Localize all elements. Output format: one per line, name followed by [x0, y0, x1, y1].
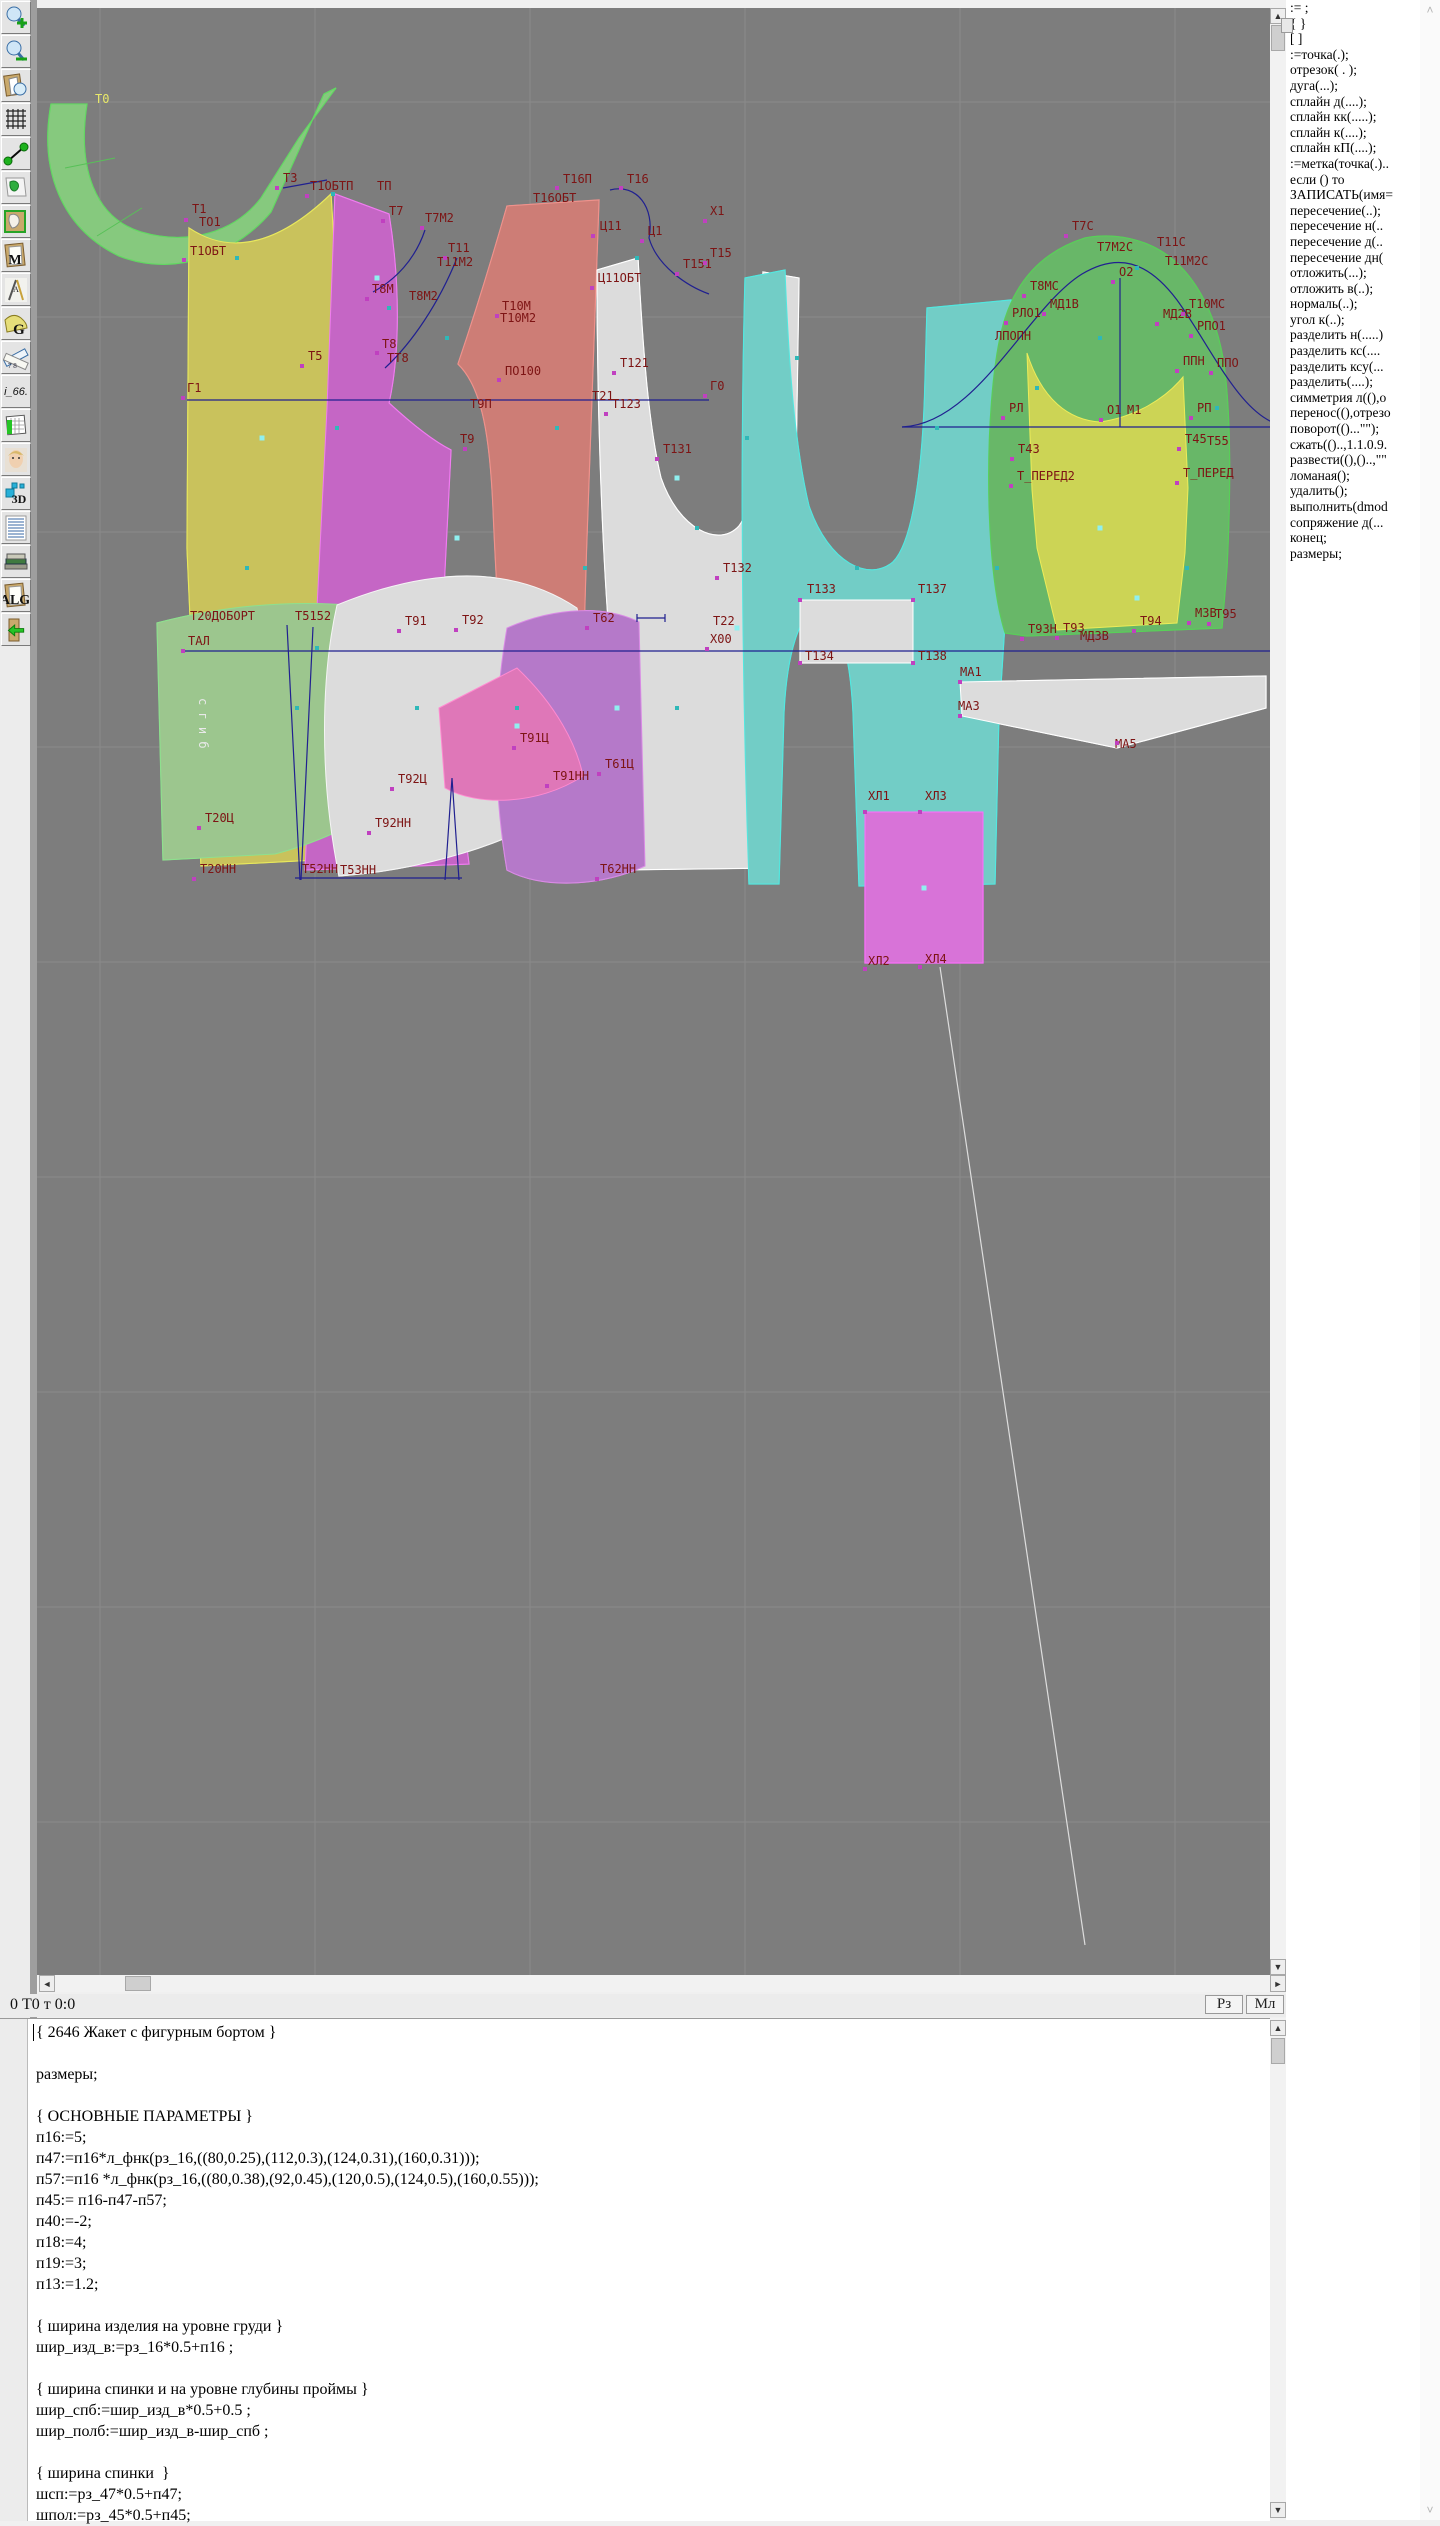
- pattern-point[interactable]: [455, 536, 460, 541]
- point-label-Т22: Т22: [713, 614, 735, 628]
- command-item-8[interactable]: сплайн к(....);: [1286, 125, 1420, 141]
- code-line-6: п47:=п16*л_фнк(рз_16,((80,0.25),(112,0.3…: [36, 2148, 539, 2169]
- pattern-point[interactable]: [1207, 622, 1211, 626]
- scroll-down-icon[interactable]: ▼: [1270, 1959, 1286, 1975]
- pattern-point[interactable]: [305, 194, 309, 198]
- pattern-point[interactable]: [515, 706, 519, 710]
- point-label-Т92НН: Т92НН: [375, 816, 411, 830]
- command-item-6[interactable]: сплайн д(....);: [1286, 94, 1420, 110]
- pattern-point[interactable]: [387, 306, 391, 310]
- pattern-point[interactable]: [1055, 636, 1059, 640]
- scroll-up-icon[interactable]: ˄: [1422, 2, 1438, 18]
- pattern-point[interactable]: [1111, 280, 1115, 284]
- pattern-point[interactable]: [235, 256, 239, 260]
- code-line-3: [36, 2085, 539, 2106]
- code-line-18: шир_спб:=шир_изд_в*0.5+0.5 ;: [36, 2400, 539, 2421]
- cursor-position-status: 0 Т0 т 0:0: [10, 1996, 75, 2014]
- pattern-point[interactable]: [335, 426, 339, 430]
- pattern-point[interactable]: [855, 566, 859, 570]
- canvas-vertical-scrollbar[interactable]: ▲ ▼: [1270, 8, 1286, 1975]
- point-label-Т131: Т131: [663, 442, 692, 456]
- scroll-down-icon[interactable]: ˅: [1422, 2502, 1438, 2518]
- sidebar-scrollbar[interactable]: ˄ ˅: [1420, 0, 1440, 2520]
- editor-text[interactable]: { 2646 Жакет с фигурным бортом } размеры…: [36, 2022, 539, 2526]
- drawing-canvas[interactable]: Т0Т1ТО1Т1ОБТТ3Т1ОБТПТПТ7Т7М2Т11Т11М2Т8МТ…: [37, 8, 1270, 1975]
- point-label-Х00: Х00: [710, 632, 732, 646]
- canvas-hscroll-thumb[interactable]: [125, 1976, 151, 1991]
- pattern-point[interactable]: [390, 787, 394, 791]
- pattern-point[interactable]: [1042, 312, 1046, 316]
- point-label-Т55: Т55: [1207, 434, 1229, 448]
- point-label-Г1: Г1: [187, 381, 201, 395]
- command-item-16[interactable]: пересечение дн(: [1286, 250, 1420, 266]
- pattern-point[interactable]: [635, 256, 639, 260]
- pattern-point[interactable]: [1098, 526, 1103, 531]
- point-label-МА3: МА3: [958, 699, 980, 713]
- point-label-ПО100: ПО100: [505, 364, 541, 378]
- pattern-point[interactable]: [918, 810, 922, 814]
- pattern-point[interactable]: [918, 965, 922, 969]
- pattern-point[interactable]: [375, 351, 379, 355]
- scroll-up-icon[interactable]: ▲: [1270, 2020, 1286, 2036]
- pattern-point[interactable]: [1177, 447, 1181, 451]
- command-item-25[interactable]: симметрия л((),о: [1286, 390, 1420, 406]
- point-label-Т20НН: Т20НН: [200, 862, 236, 876]
- point-label-Т11М2: Т11М2: [437, 255, 473, 269]
- pattern-point[interactable]: [604, 412, 608, 416]
- command-item-26[interactable]: перенос((),отрезо: [1286, 405, 1420, 421]
- code-line-14: { ширина изделия на уровне груди }: [36, 2316, 539, 2337]
- command-item-9[interactable]: сплайн кП(....);: [1286, 140, 1420, 156]
- command-item-0[interactable]: := ;: [1286, 0, 1420, 16]
- text-cursor: [33, 2024, 34, 2041]
- pattern-point[interactable]: [300, 364, 304, 368]
- point-label-Г0: Г0: [710, 379, 724, 393]
- code-line-9: п40:=-2;: [36, 2211, 539, 2232]
- point-label-МД2В: МД2В: [1163, 307, 1192, 321]
- status-bar: 0 Т0 т 0:0 Рз Мл: [0, 1994, 1286, 2017]
- point-label-Т92Ц: Т92Ц: [398, 772, 427, 786]
- pattern-point[interactable]: [245, 566, 249, 570]
- svg-text:ALG: ALG: [3, 593, 29, 608]
- point-label-Т16: Т16: [627, 172, 649, 186]
- algorithm-icon[interactable]: ALG: [1, 579, 31, 612]
- point-label-Т9П: Т9П: [470, 397, 492, 411]
- point-label-Т_ПЕРЕД: Т_ПЕРЕД: [1183, 466, 1234, 480]
- pattern-point[interactable]: [995, 566, 999, 570]
- point-label-РЛ: РЛ: [1009, 401, 1023, 415]
- point-label-ХЛ4: ХЛ4: [925, 952, 947, 966]
- pattern-point[interactable]: [703, 261, 707, 265]
- pattern-point[interactable]: [705, 647, 709, 651]
- preview-piece-icon[interactable]: [1, 69, 31, 102]
- point-label-Т7: Т7: [389, 204, 403, 218]
- pattern-point[interactable]: [454, 628, 458, 632]
- point-label-ТО1: ТО1: [199, 215, 221, 229]
- point-label-Т133: Т133: [807, 582, 836, 596]
- point-label-Т11М2С: Т11М2С: [1165, 254, 1208, 268]
- point-label-Ц11ОБТ: Ц11ОБТ: [598, 271, 641, 285]
- pattern-point[interactable]: [367, 831, 371, 835]
- point-label-Т93Н: Т93Н: [1028, 622, 1057, 636]
- pattern-point[interactable]: [1187, 621, 1191, 625]
- point-label-Т134: Т134: [805, 649, 834, 663]
- point-label-Т53НН: Т53НН: [340, 863, 376, 877]
- point-label-Т7С: Т7С: [1072, 219, 1094, 233]
- 3d-view-icon[interactable]: 3D: [1, 477, 31, 510]
- code-line-21: { ширина спинки }: [36, 2463, 539, 2484]
- point-label-Т11: Т11: [448, 241, 470, 255]
- pattern-point[interactable]: [640, 239, 644, 243]
- editor-gutter: [0, 2019, 28, 2521]
- pattern-point[interactable]: [1175, 481, 1179, 485]
- command-item-23[interactable]: разделить ксу(...: [1286, 359, 1420, 375]
- point-label-Т_ПЕРЕД2: Т_ПЕРЕД2: [1017, 469, 1075, 483]
- pattern-point[interactable]: [1189, 416, 1193, 420]
- point-label-Т1ОБТ: Т1ОБТ: [190, 244, 226, 258]
- pattern-point[interactable]: [497, 378, 501, 382]
- point-label-Т52НН: Т52НН: [302, 862, 338, 876]
- pattern-point[interactable]: [1004, 321, 1008, 325]
- pattern-point[interactable]: [260, 436, 265, 441]
- command-item-33[interactable]: сопряжение д(...: [1286, 515, 1420, 531]
- command-item-21[interactable]: разделить н(.....): [1286, 327, 1420, 343]
- point-label-О1: О1: [1107, 403, 1121, 417]
- command-item-30[interactable]: ломаная();: [1286, 468, 1420, 484]
- point-label-Т91: Т91: [405, 614, 427, 628]
- point-label-Т10МС: Т10МС: [1189, 297, 1225, 311]
- pattern-point[interactable]: [1155, 322, 1159, 326]
- pattern-point[interactable]: [275, 186, 279, 190]
- code-line-7: п57:=п16 *л_фнк(рз_16,((80,0.38),(92,0.4…: [36, 2169, 539, 2190]
- import-book-icon[interactable]: [1, 613, 31, 646]
- size-table-icon[interactable]: [1, 409, 31, 442]
- fold-label: с г и б: [196, 698, 210, 749]
- point-label-Т10М2: Т10М2: [500, 311, 536, 325]
- code-line-16: [36, 2358, 539, 2379]
- command-item-7[interactable]: сплайн кк(.....);: [1286, 109, 1420, 125]
- pattern-point[interactable]: [515, 724, 520, 729]
- point-label-М3В: М3В: [1195, 606, 1217, 620]
- command-item-28[interactable]: сжать(()..,1.1.0.9.: [1286, 437, 1420, 453]
- editor-vertical-scrollbar[interactable]: ▲ ▼: [1270, 2018, 1286, 2520]
- drafting-tools-icon[interactable]: A: [1, 273, 31, 306]
- pattern-point[interactable]: [615, 706, 620, 711]
- pattern-point[interactable]: [675, 706, 679, 710]
- svg-text:3D: 3D: [12, 492, 27, 506]
- point-label-Т151: Т151: [683, 257, 712, 271]
- point-label-Ц1: Ц1: [648, 224, 662, 238]
- pattern-point[interactable]: [181, 649, 185, 653]
- point-label-ХЛ2: ХЛ2: [868, 954, 890, 968]
- pattern-icon[interactable]: [1, 205, 31, 238]
- point-label-Т8М2: Т8М2: [409, 289, 438, 303]
- script-list-icon[interactable]: [1, 511, 31, 544]
- point-label-Т91НН: Т91НН: [553, 769, 589, 783]
- command-item-19[interactable]: нормаль(..);: [1286, 296, 1420, 312]
- pattern-point[interactable]: [1115, 741, 1119, 745]
- point-label-РП: РП: [1197, 401, 1211, 415]
- point-label-Т62: Т62: [593, 611, 615, 625]
- pattern-point[interactable]: [375, 276, 380, 281]
- command-item-34[interactable]: конец;: [1286, 530, 1420, 546]
- pattern-point[interactable]: [798, 661, 802, 665]
- command-item-27[interactable]: поворот(()..."");: [1286, 421, 1420, 437]
- command-item-4[interactable]: отрезок( . );: [1286, 62, 1420, 78]
- pattern-point[interactable]: [715, 576, 719, 580]
- command-item-29[interactable]: развести((),()..,"": [1286, 452, 1420, 468]
- pattern-point[interactable]: [798, 598, 802, 602]
- portrait-icon[interactable]: [1, 443, 31, 476]
- pattern-point[interactable]: [675, 272, 679, 276]
- pattern-point[interactable]: [1010, 457, 1014, 461]
- rz-button[interactable]: Рз: [1205, 1995, 1243, 2014]
- canvas-horizontal-scrollbar[interactable]: ◄ ►: [37, 1975, 1286, 1992]
- pattern-point[interactable]: [1022, 294, 1026, 298]
- point-label-Т0: Т0: [95, 92, 109, 106]
- point-label-Т5152: Т5152: [295, 609, 331, 623]
- code-line-5: п16:=5;: [36, 2127, 539, 2148]
- pattern-point[interactable]: [911, 598, 915, 602]
- pattern-point[interactable]: [922, 886, 927, 891]
- point-label-Т9: Т9: [460, 432, 474, 446]
- grid-icon[interactable]: [1, 103, 31, 136]
- pattern-point[interactable]: [381, 219, 385, 223]
- command-item-14[interactable]: пересечение н(..: [1286, 218, 1420, 234]
- command-item-24[interactable]: разделить(....);: [1286, 374, 1420, 390]
- command-item-15[interactable]: пересечение д(..: [1286, 234, 1420, 250]
- pattern-point[interactable]: [1185, 566, 1189, 570]
- pattern-point[interactable]: [1098, 336, 1102, 340]
- code-line-1: [36, 2043, 539, 2064]
- point-label-Т45: Т45: [1185, 432, 1207, 446]
- pattern-point[interactable]: [192, 877, 196, 881]
- point-label-ППО: ППО: [1217, 356, 1239, 370]
- point-label-Т8МС: Т8МС: [1030, 279, 1059, 293]
- point-label-Т61Ц: Т61Ц: [605, 757, 634, 771]
- command-item-32[interactable]: выполнить(dmod: [1286, 499, 1420, 515]
- code-line-13: [36, 2295, 539, 2316]
- pattern-point[interactable]: [512, 746, 516, 750]
- pattern-point[interactable]: [545, 784, 549, 788]
- zoom-in-icon[interactable]: [1, 1, 31, 34]
- point-label-Т137: Т137: [918, 582, 947, 596]
- pattern-point[interactable]: [597, 772, 601, 776]
- pattern-point[interactable]: [1035, 386, 1039, 390]
- point-label-Т7М2: Т7М2: [425, 211, 454, 225]
- point-label-Т5: Т5: [308, 349, 322, 363]
- code-line-23: шпол:=рз_45*0.5+п45;: [36, 2505, 539, 2526]
- command-list: := ;{ }[ ]:=точка(.);отрезок( . );дуга(.…: [1286, 0, 1420, 2520]
- pattern-point[interactable]: [1209, 371, 1213, 375]
- pattern-point[interactable]: [197, 826, 201, 830]
- point-label-Т95: Т95: [1215, 607, 1237, 621]
- code-line-8: п45:= п16-п47-п57;: [36, 2190, 539, 2211]
- command-item-5[interactable]: дуга(...);: [1286, 78, 1420, 94]
- command-item-31[interactable]: удалить();: [1286, 483, 1420, 499]
- pattern-point[interactable]: [1189, 334, 1193, 338]
- command-item-2[interactable]: [ ]: [1286, 31, 1420, 47]
- command-item-20[interactable]: угол к(..);: [1286, 312, 1420, 328]
- pattern-point[interactable]: [703, 394, 707, 398]
- segment-icon[interactable]: [1, 137, 31, 170]
- scroll-down-icon[interactable]: ▼: [1270, 2502, 1286, 2518]
- pattern-point[interactable]: [443, 256, 447, 260]
- pattern-point[interactable]: [1181, 312, 1185, 316]
- point-label-Т91Ц: Т91Ц: [520, 731, 549, 745]
- pattern-point[interactable]: [1009, 484, 1013, 488]
- point-label-ППН: ППН: [1183, 354, 1205, 368]
- pattern-point[interactable]: [863, 967, 867, 971]
- svg-text:7 8: 7 8: [8, 362, 17, 370]
- pattern-point[interactable]: [655, 457, 659, 461]
- point-label-Т16ОБТ: Т16ОБТ: [533, 191, 576, 205]
- pattern-point[interactable]: [1001, 416, 1005, 420]
- pattern-point[interactable]: [1064, 234, 1068, 238]
- pattern-point[interactable]: [181, 396, 185, 400]
- command-item-13[interactable]: пересечение(..);: [1286, 203, 1420, 219]
- pattern-point[interactable]: [583, 566, 587, 570]
- code-line-20: [36, 2442, 539, 2463]
- pattern-point[interactable]: [1132, 629, 1136, 633]
- pattern-point[interactable]: [315, 646, 319, 650]
- pattern-point[interactable]: [958, 680, 962, 684]
- i66-button[interactable]: i_66.: [1, 375, 31, 408]
- point-label-Т20ДОБОРТ: Т20ДОБОРТ: [190, 609, 255, 623]
- pattern-point[interactable]: [1215, 406, 1219, 410]
- point-label-Т16П: Т16П: [563, 172, 592, 186]
- code-line-12: п13:=1.2;: [36, 2274, 539, 2295]
- point-label-ХЛ3: ХЛ3: [925, 789, 947, 803]
- point-label-Ц11: Ц11: [600, 219, 622, 233]
- point-label-Т1: Т1: [192, 202, 206, 216]
- pattern-point[interactable]: [1135, 596, 1140, 601]
- pattern-point[interactable]: [675, 476, 680, 481]
- scroll-right-icon[interactable]: ►: [1270, 1975, 1286, 1992]
- pattern-point[interactable]: [795, 356, 799, 360]
- pattern-point[interactable]: [1099, 418, 1103, 422]
- point-label-Т132: Т132: [723, 561, 752, 575]
- point-label-Т20Ц: Т20Ц: [205, 811, 234, 825]
- command-item-22[interactable]: разделить кс(....: [1286, 343, 1420, 359]
- pattern-point[interactable]: [911, 661, 915, 665]
- point-label-М1: М1: [1127, 403, 1141, 417]
- code-line-10: п18:=4;: [36, 2232, 539, 2253]
- point-label-ТАЛ: ТАЛ: [188, 634, 210, 648]
- pattern-point[interactable]: [182, 258, 186, 262]
- pattern-point[interactable]: [331, 192, 335, 196]
- point-label-ТТ8: ТТ8: [387, 351, 409, 365]
- rulers-icon[interactable]: 7 8: [1, 341, 31, 374]
- pattern-point[interactable]: [703, 219, 707, 223]
- code-line-0: { 2646 Жакет с фигурным бортом }: [36, 2022, 539, 2043]
- command-item-10[interactable]: :=метка(точка(.)..: [1286, 156, 1420, 172]
- point-label-ТП: ТП: [377, 179, 391, 193]
- pattern-point[interactable]: [463, 447, 467, 451]
- pattern-point[interactable]: [585, 626, 589, 630]
- command-item-35[interactable]: размеры;: [1286, 546, 1420, 562]
- model-document-icon[interactable]: M: [1, 239, 31, 272]
- point-label-Т11С: Т11С: [1157, 235, 1186, 249]
- point-label-Т7М2С: Т7М2С: [1097, 240, 1133, 254]
- point-label-Т92: Т92: [462, 613, 484, 627]
- scroll-left-icon[interactable]: ◄: [39, 1975, 55, 1992]
- map-icon[interactable]: [1, 171, 31, 204]
- point-label-РЛО1: РЛО1: [1012, 306, 1041, 320]
- g-pattern-icon[interactable]: G: [1, 307, 31, 340]
- point-label-Т62НН: Т62НН: [600, 862, 636, 876]
- pattern-point[interactable]: [555, 186, 559, 190]
- editor-vscroll-thumb[interactable]: [1271, 2038, 1285, 2064]
- sidebar-handle: [1281, 18, 1293, 33]
- code-line-4: { ОСНОВНЫЕ ПАРАМЕТРЫ }: [36, 2106, 539, 2127]
- pattern-point[interactable]: [745, 436, 749, 440]
- ml-button[interactable]: Мл: [1246, 1995, 1284, 2014]
- command-item-17[interactable]: отложить(...);: [1286, 265, 1420, 281]
- point-label-Т8: Т8: [382, 337, 396, 351]
- pattern-point[interactable]: [555, 426, 559, 430]
- pattern-point[interactable]: [612, 371, 616, 375]
- point-label-Т8М: Т8М: [372, 282, 394, 296]
- command-item-12[interactable]: ЗАПИСАТЬ(имя=: [1286, 187, 1420, 203]
- pattern-point[interactable]: [935, 426, 939, 430]
- command-item-18[interactable]: отложить в(..);: [1286, 281, 1420, 297]
- point-label-ЛПОПН: ЛПОПН: [995, 329, 1031, 343]
- pattern-point[interactable]: [397, 629, 401, 633]
- pattern-point[interactable]: [695, 526, 699, 530]
- pattern-point[interactable]: [295, 706, 299, 710]
- pattern-point[interactable]: [863, 810, 867, 814]
- books-icon[interactable]: [1, 545, 31, 578]
- code-line-11: п19:=3;: [36, 2253, 539, 2274]
- svg-text:G: G: [13, 322, 25, 338]
- command-item-3[interactable]: :=точка(.);: [1286, 47, 1420, 63]
- pattern-point[interactable]: [1175, 369, 1179, 373]
- command-item-11[interactable]: если () то: [1286, 172, 1420, 188]
- point-label-Т1ОБТП: Т1ОБТП: [310, 179, 353, 193]
- zoom-out-icon[interactable]: [1, 35, 31, 68]
- pattern-point[interactable]: [619, 186, 623, 190]
- pattern-point[interactable]: [735, 626, 740, 631]
- code-line-15: шир_изд_в:=рз_16*0.5+п16 ;: [36, 2337, 539, 2358]
- pattern-point[interactable]: [420, 226, 424, 230]
- algorithm-editor[interactable]: { 2646 Жакет с фигурным бортом } размеры…: [0, 2018, 1270, 2521]
- pattern-point[interactable]: [495, 314, 499, 318]
- pattern-point[interactable]: [595, 877, 599, 881]
- point-label-МД3В: МД3В: [1080, 629, 1109, 643]
- pattern-cad-app: { "status": {"left":"0 Т0 т 0:0", "btn_r…: [0, 0, 1440, 2520]
- svg-text:M: M: [8, 253, 21, 268]
- pattern-point[interactable]: [365, 297, 369, 301]
- pattern-point[interactable]: [415, 706, 419, 710]
- pattern-point[interactable]: [1135, 266, 1139, 270]
- pattern-point[interactable]: [591, 234, 595, 238]
- point-label-Т43: Т43: [1018, 442, 1040, 456]
- pattern-point[interactable]: [958, 714, 962, 718]
- point-label-Т3: Т3: [283, 171, 297, 185]
- pattern-point[interactable]: [445, 336, 449, 340]
- pattern-drawing: Т0Т1ТО1Т1ОБТТ3Т1ОБТПТПТ7Т7М2Т11Т11М2Т8МТ…: [37, 8, 1270, 1975]
- code-line-17: { ширина спинки и на уровне глубины прой…: [36, 2379, 539, 2400]
- point-label-О2: О2: [1119, 265, 1133, 279]
- command-item-1[interactable]: { }: [1286, 16, 1420, 32]
- point-label-Т21: Т21: [592, 389, 614, 403]
- pattern-point[interactable]: [1020, 637, 1024, 641]
- pattern-point[interactable]: [590, 286, 594, 290]
- point-label-Т138: Т138: [918, 649, 947, 663]
- pattern-point[interactable]: [184, 218, 188, 222]
- point-label-РПО1: РПО1: [1197, 319, 1226, 333]
